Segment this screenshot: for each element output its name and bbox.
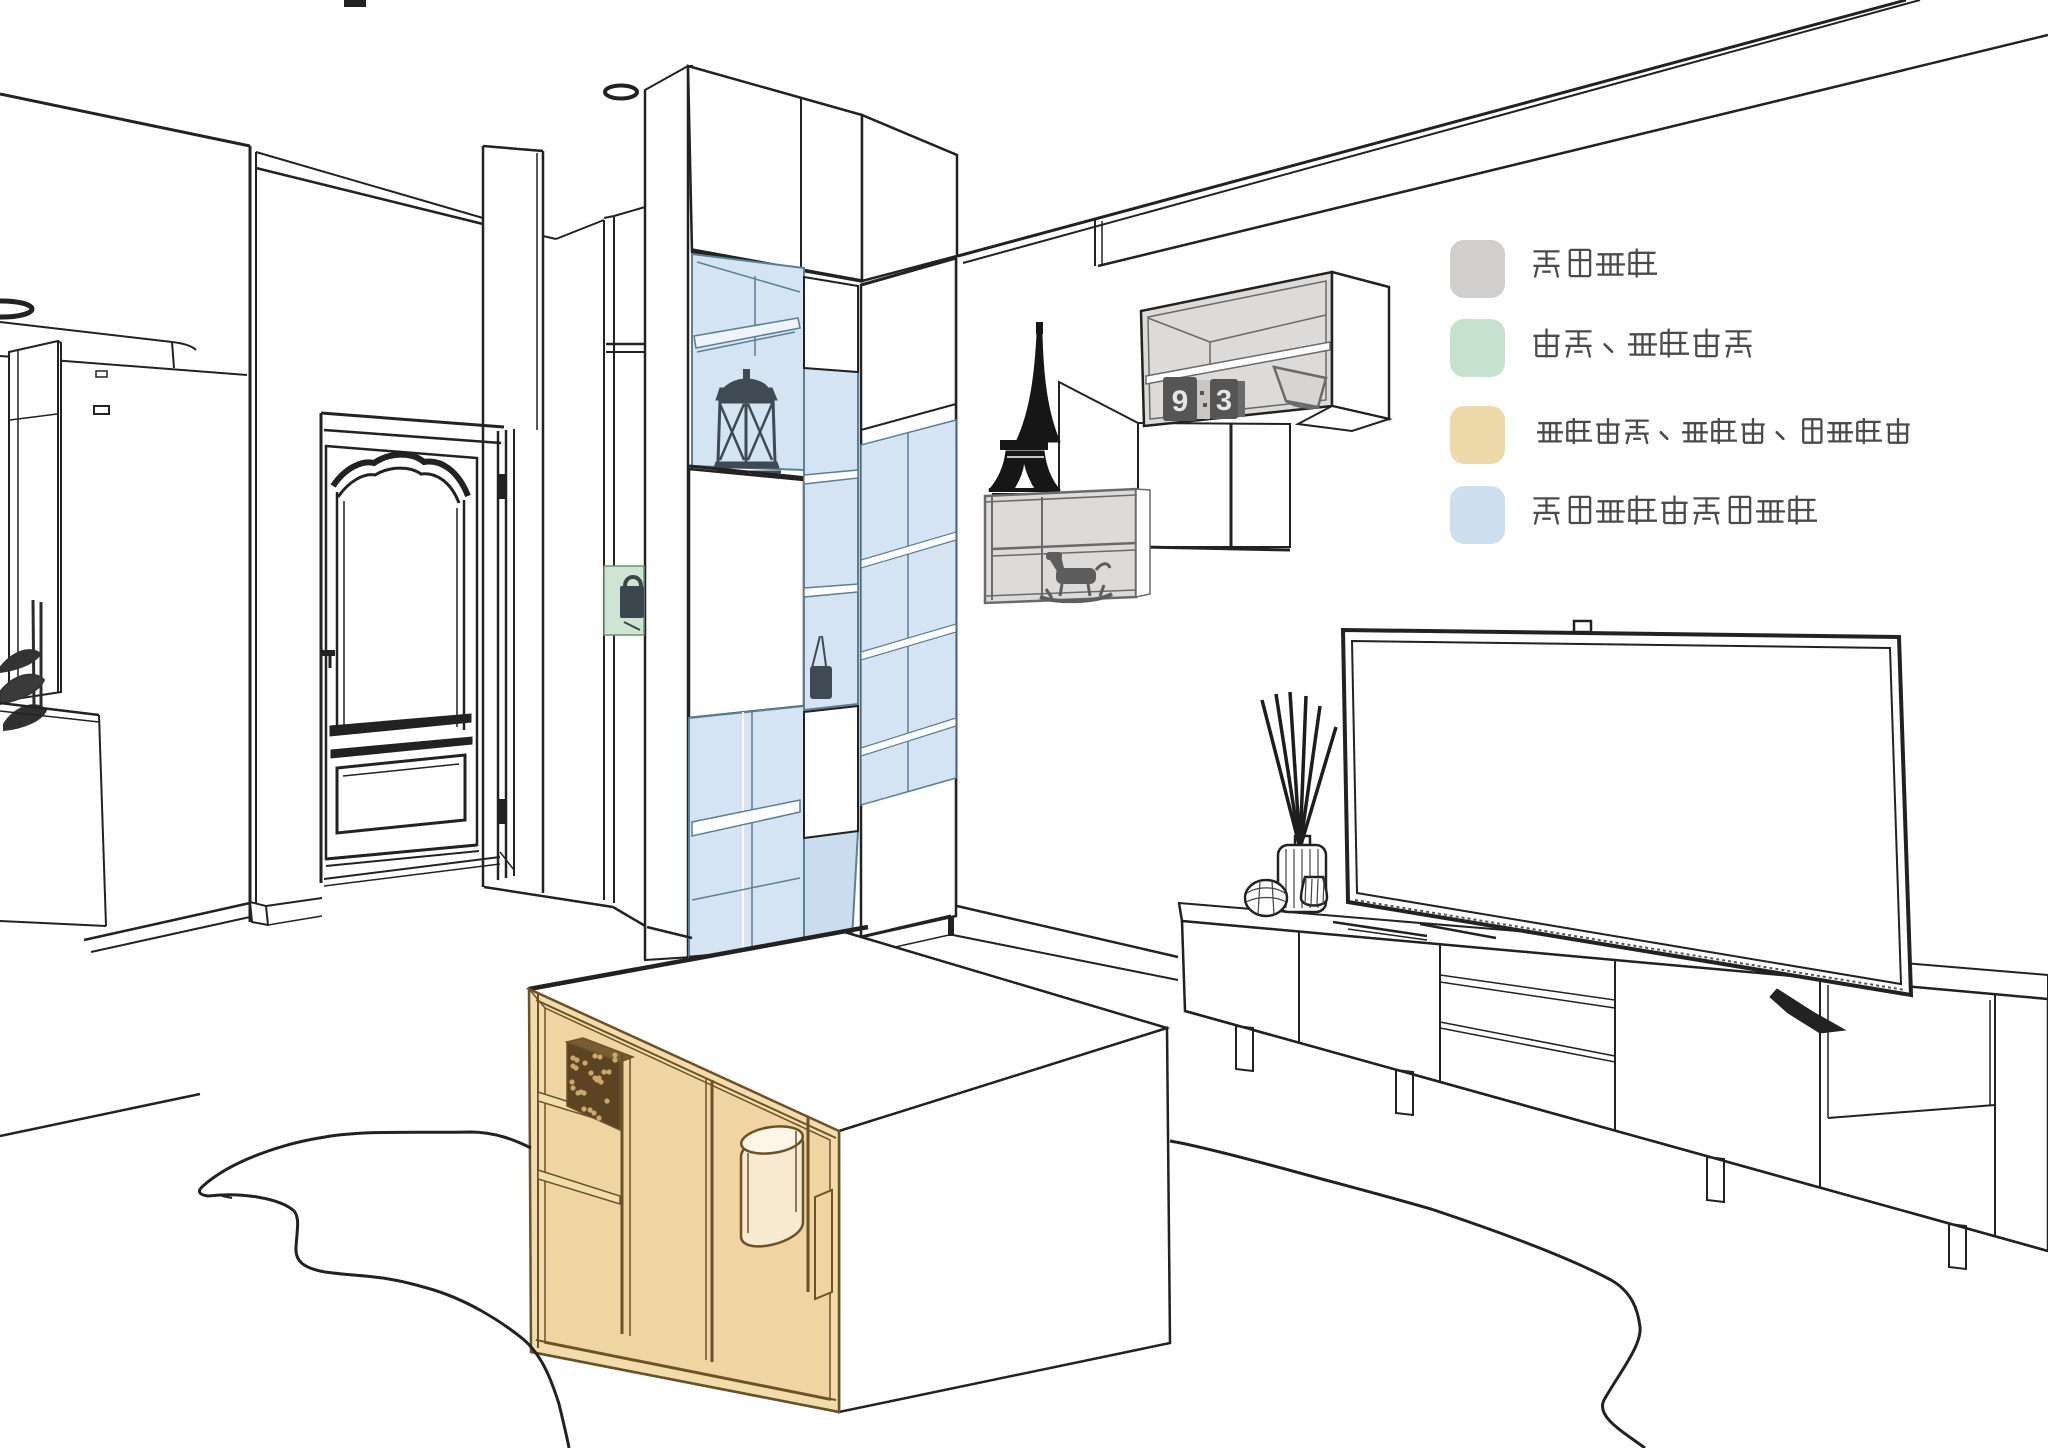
svg-text:3: 3 (1216, 385, 1232, 417)
svg-text:9: 9 (1172, 385, 1189, 418)
